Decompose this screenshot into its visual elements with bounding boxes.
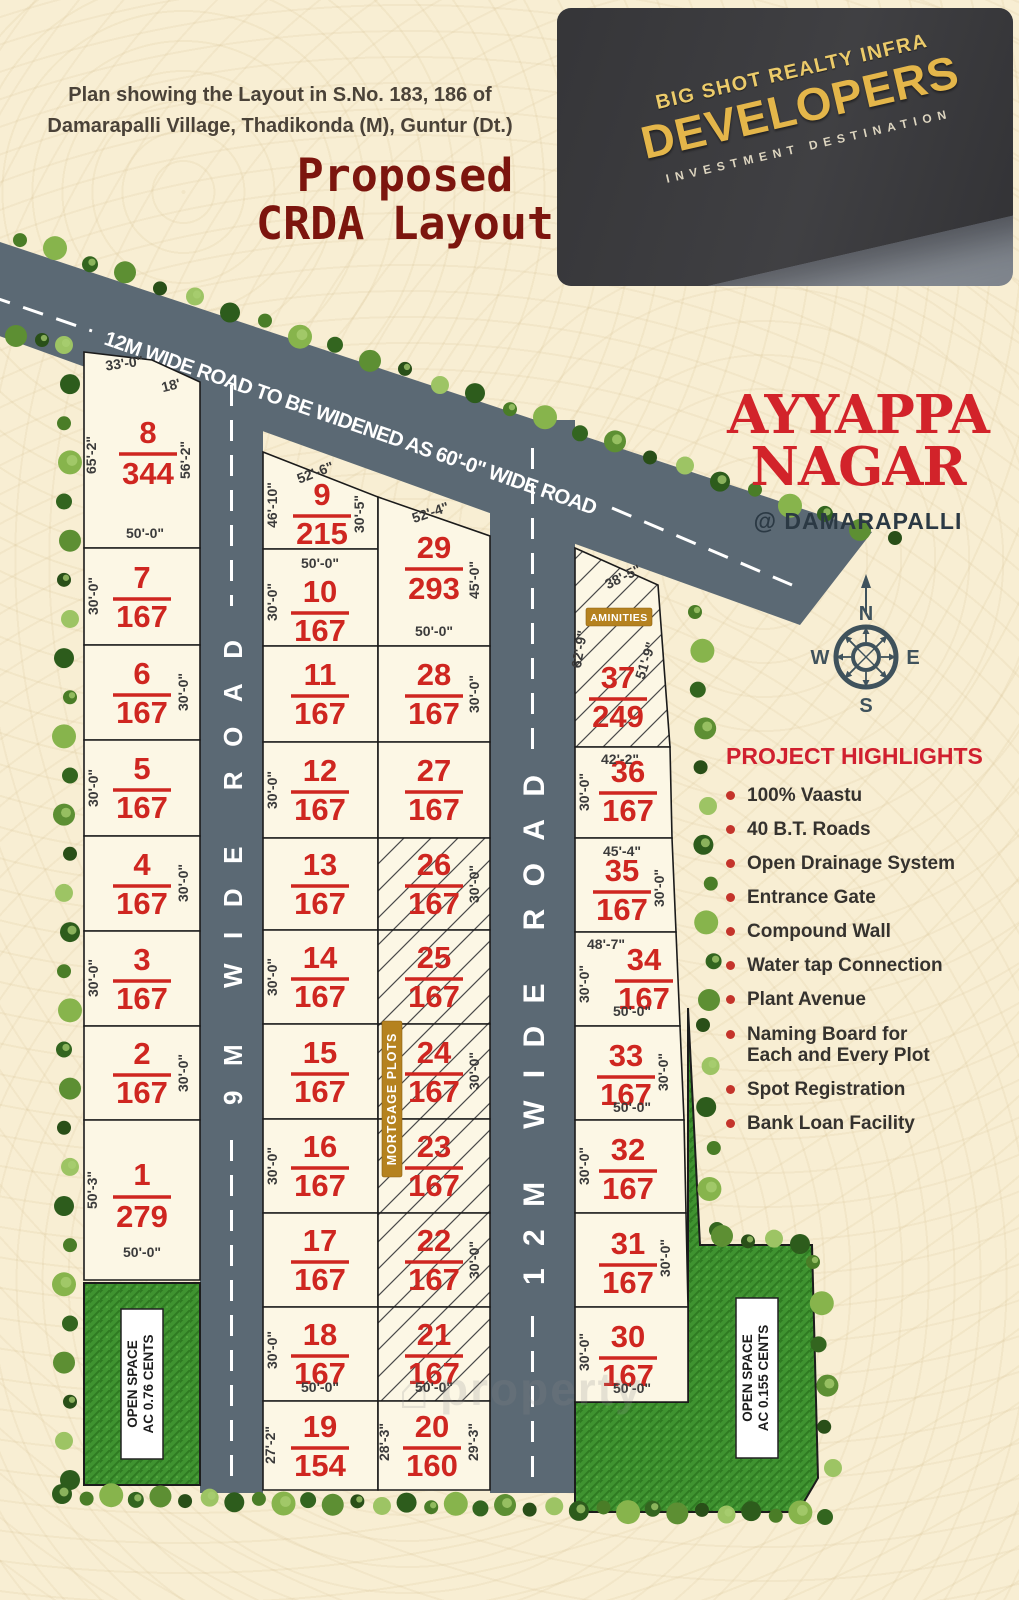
tree-highlight xyxy=(430,1502,436,1508)
tree-icon xyxy=(690,682,706,698)
tree-highlight xyxy=(712,956,719,963)
tree-icon xyxy=(59,1078,81,1100)
tree-highlight xyxy=(69,692,75,698)
plot-number: 34 xyxy=(627,942,662,977)
tree-icon xyxy=(61,610,79,628)
svg-text:property: property xyxy=(440,1363,643,1415)
tree-icon xyxy=(13,233,27,247)
highlight-text: Bank Loan Facility xyxy=(747,1113,915,1134)
plot-dimension: 50'-3" xyxy=(84,1171,100,1209)
bullet-icon xyxy=(726,791,735,800)
plot-area: 167 xyxy=(408,1168,460,1203)
plot-number: 33 xyxy=(609,1038,643,1073)
highlight-text: Entrance Gate xyxy=(747,887,876,908)
plot-area: 167 xyxy=(408,792,460,827)
tree-icon xyxy=(690,639,714,663)
plot-11[interactable]: 11167 xyxy=(263,646,378,742)
plot-number: 31 xyxy=(611,1226,645,1261)
page-title: Proposed CRDA Layout xyxy=(205,152,605,247)
plot-dimension: 46'-10" xyxy=(264,482,280,528)
tree-icon xyxy=(59,530,81,552)
plan-description-line2: Damarapalli Village, Thadikonda (M), Gun… xyxy=(30,111,530,142)
plot-16[interactable]: 1616730'-0" xyxy=(263,1119,378,1213)
tree-highlight xyxy=(576,1504,585,1513)
north-arrow-icon xyxy=(861,574,871,588)
tree-highlight xyxy=(61,808,71,818)
svg-text:AC 0.155 CENTS: AC 0.155 CENTS xyxy=(756,1325,771,1432)
plot-dimension: 30'-0" xyxy=(651,869,667,907)
tree-icon xyxy=(676,457,694,475)
highlight-item: 40 B.T. Roads xyxy=(726,819,1018,840)
plot-15[interactable]: 15167 xyxy=(263,1024,378,1119)
bullet-icon xyxy=(726,859,735,868)
tree-icon xyxy=(465,383,485,403)
plot-17[interactable]: 17167 xyxy=(263,1213,378,1307)
mortgage-label: MORTGAGE PLOTS xyxy=(385,1033,399,1166)
plot-19[interactable]: 1915427'-2" xyxy=(262,1401,378,1490)
plot-number: 3 xyxy=(133,942,150,977)
highlight-item: Entrance Gate xyxy=(726,887,1018,908)
plot-27[interactable]: 27167 xyxy=(378,742,490,838)
svg-text:OPEN SPACE: OPEN SPACE xyxy=(125,1340,140,1428)
tree-highlight xyxy=(61,1277,72,1288)
plot-2[interactable]: 216730'-0" xyxy=(84,1026,200,1120)
tree-highlight xyxy=(356,1496,362,1502)
plot-dimension: 27'-2" xyxy=(262,1426,278,1464)
plot-7[interactable]: 716730'-0" xyxy=(84,548,200,645)
tree-icon xyxy=(444,1492,468,1516)
plot-area: 167 xyxy=(408,886,460,921)
plot-dimension: 30'-0" xyxy=(264,771,280,809)
tree-icon xyxy=(114,261,136,283)
compass-s-label: S xyxy=(859,695,872,717)
page-title-line2: CRDA Layout xyxy=(205,200,605,248)
plot-3[interactable]: 316730'-0" xyxy=(84,931,200,1026)
tree-icon xyxy=(55,884,73,902)
compass-w-label: W xyxy=(811,647,830,669)
plot-9[interactable]: 921552'-6"46'-10"30'-5" xyxy=(263,452,378,551)
tree-icon xyxy=(616,1500,640,1524)
tree-icon xyxy=(711,1225,733,1247)
compass-e-label: E xyxy=(906,647,919,669)
plot-1[interactable]: 127950'-3"50'-0" xyxy=(84,1120,200,1280)
tree-icon xyxy=(695,1503,709,1517)
bullet-icon xyxy=(726,825,735,834)
plot-area: 167 xyxy=(408,696,460,731)
highlight-text: Plant Avenue xyxy=(747,989,866,1010)
tree-highlight xyxy=(62,1044,69,1051)
plot-area: 293 xyxy=(408,571,460,606)
plot-number: 2 xyxy=(133,1036,150,1071)
plot-dimension: 45'-0" xyxy=(466,561,482,599)
plot-number: 16 xyxy=(303,1129,337,1164)
plot-area: 167 xyxy=(294,792,346,827)
tree-highlight xyxy=(701,838,710,847)
plot-32[interactable]: 3216730'-0" xyxy=(575,1120,686,1213)
plot-dimension: 30'-0" xyxy=(466,675,482,713)
plot-number: 7 xyxy=(133,560,150,595)
highlight-item: Bank Loan Facility xyxy=(726,1113,1018,1134)
tree-icon xyxy=(694,910,718,934)
highlight-item: Naming Board for Each and Every Plot xyxy=(726,1024,1018,1066)
bullet-icon xyxy=(726,893,735,902)
tree-icon xyxy=(54,648,74,668)
tree-highlight xyxy=(67,455,78,466)
tree-icon xyxy=(817,1420,831,1434)
tree-icon xyxy=(58,998,82,1022)
plot-number: 18 xyxy=(303,1317,337,1352)
plot-dimension: 30'-0" xyxy=(264,958,280,996)
tree-highlight xyxy=(502,1498,512,1508)
plot-14[interactable]: 1416730'-0" xyxy=(263,930,378,1024)
tree-icon xyxy=(62,1315,78,1331)
tree-icon xyxy=(769,1509,783,1523)
compass-n-label: N xyxy=(859,603,873,625)
highlight-item: 100% Vaastu xyxy=(726,785,1018,806)
plot-area: 167 xyxy=(116,790,168,825)
tree-highlight xyxy=(62,339,70,347)
plot-dimension: 45'-4" xyxy=(603,843,641,859)
plot-number: 6 xyxy=(133,656,150,691)
tree-highlight xyxy=(60,1488,69,1497)
plot-dimension: 50'-0" xyxy=(126,525,164,541)
plot-area: 344 xyxy=(122,456,174,491)
plot-area: 167 xyxy=(116,599,168,634)
plot-dimension: 50'-0" xyxy=(415,623,453,639)
plot-area: 167 xyxy=(294,1262,346,1297)
plot-number: 27 xyxy=(417,753,451,788)
tree-highlight xyxy=(297,329,308,340)
tree-icon xyxy=(57,964,71,978)
plot-18[interactable]: 1816730'-0"50'-0" xyxy=(263,1307,378,1401)
tree-icon xyxy=(258,314,272,328)
plot-dimension: 30'-0" xyxy=(175,1054,191,1092)
plot-dimension: 30'-0" xyxy=(85,769,101,807)
plot-25[interactable]: 25167 xyxy=(378,930,490,1024)
plot-number: 24 xyxy=(417,1035,452,1070)
highlight-item: Plant Avenue xyxy=(726,989,1018,1010)
plot-dimension: 42'-2" xyxy=(601,751,639,767)
plot-number: 13 xyxy=(303,847,337,882)
plot-number: 15 xyxy=(303,1035,337,1070)
tree-highlight xyxy=(69,1397,75,1403)
plot-dimension: 30'-0" xyxy=(576,1147,592,1185)
plot-28[interactable]: 2816730'-0" xyxy=(378,646,490,742)
tree-highlight xyxy=(694,607,700,613)
plot-number: 22 xyxy=(417,1223,451,1258)
highlights-list: 100% Vaastu40 B.T. RoadsOpen Drainage Sy… xyxy=(726,785,1018,1134)
plot-31[interactable]: 3116730'-0" xyxy=(575,1213,688,1307)
bullet-icon xyxy=(726,1119,735,1128)
tree-icon xyxy=(431,376,449,394)
plot-area: 167 xyxy=(408,1262,460,1297)
amenities-label: AMINITIES xyxy=(590,612,648,624)
plot-dimension: 30'-0" xyxy=(264,1147,280,1185)
plot-26[interactable]: 2616730'-0" xyxy=(378,838,490,930)
bullet-icon xyxy=(726,1030,735,1039)
tree-icon xyxy=(220,303,240,323)
plot-33[interactable]: 3316730'-0"50'-0" xyxy=(575,1026,684,1120)
plot-35[interactable]: 3516745'-4"30'-0" xyxy=(575,838,676,932)
plot-number: 26 xyxy=(417,847,451,882)
plot-area: 167 xyxy=(408,1074,460,1109)
plot-dimension: 29'-3" xyxy=(465,1423,481,1461)
plot-dimension: 30'-0" xyxy=(264,1331,280,1369)
plot-area: 167 xyxy=(116,886,168,921)
plot-dimension: 30'-5" xyxy=(351,495,367,533)
plot-number: 29 xyxy=(417,530,451,565)
tree-icon xyxy=(178,1494,192,1508)
plot-dimension: 50'-0" xyxy=(301,1379,339,1395)
project-location: @ DAMARAPALLI xyxy=(708,508,1008,535)
tree-icon xyxy=(373,1497,391,1515)
highlight-item: Compound Wall xyxy=(726,921,1018,942)
tree-icon xyxy=(694,760,708,774)
highlight-text: Naming Board for Each and Every Plot xyxy=(747,1024,930,1066)
plot-number: 21 xyxy=(417,1317,451,1352)
open-space-left-label: OPEN SPACEAC 0.76 CENTS xyxy=(121,1309,163,1459)
plot-dimension: 50'-0" xyxy=(123,1244,161,1260)
plot-number: 14 xyxy=(303,940,338,975)
tree-icon xyxy=(149,1485,171,1507)
plot-area: 167 xyxy=(294,886,346,921)
highlight-text: Spot Registration xyxy=(747,1079,905,1100)
bullet-icon xyxy=(726,961,735,970)
tree-icon xyxy=(596,1500,610,1514)
tree-highlight xyxy=(193,290,201,298)
plot-number: 12 xyxy=(303,753,337,788)
tree-icon xyxy=(523,1503,537,1517)
plot-10[interactable]: 1016750'-0"30'-0" xyxy=(263,549,378,648)
tree-icon xyxy=(696,1018,710,1032)
plot-dimension: 30'-0" xyxy=(466,1052,482,1090)
tree-icon xyxy=(810,1291,834,1315)
plot-area: 167 xyxy=(294,613,346,648)
plot-area: 167 xyxy=(602,793,654,828)
plot-area: 279 xyxy=(116,1199,168,1234)
tree-icon xyxy=(327,337,343,353)
tree-highlight xyxy=(41,335,47,341)
project-name-block: AYYAPPA NAGAR @ DAMARAPALLI xyxy=(708,390,1008,535)
tree-icon xyxy=(698,989,720,1011)
plot-dimension: 48'-7" xyxy=(587,936,625,952)
plot-number: 28 xyxy=(417,657,451,692)
plot-area: 167 xyxy=(294,979,346,1014)
tree-icon xyxy=(43,236,67,260)
tree-highlight xyxy=(509,404,515,410)
tree-highlight xyxy=(88,259,95,266)
plot-34[interactable]: 3416748'-7"30'-0"50'-0" xyxy=(575,932,680,1026)
highlight-item: Open Drainage System xyxy=(726,853,1018,874)
tree-icon xyxy=(397,1493,417,1513)
plot-number: 19 xyxy=(303,1409,337,1444)
plot-area: 167 xyxy=(602,1265,654,1300)
tree-icon xyxy=(790,1234,810,1254)
page-title-line1: Proposed xyxy=(205,152,605,200)
tree-highlight xyxy=(68,926,77,935)
tree-highlight xyxy=(747,1236,753,1242)
plot-12[interactable]: 1216730'-0" xyxy=(263,742,378,838)
plot-29[interactable]: 2929352'-4"45'-0"50'-0" xyxy=(378,497,490,646)
tree-highlight xyxy=(68,1161,76,1169)
plot-dimension: 30'-0" xyxy=(657,1239,673,1277)
bullet-icon xyxy=(726,1085,735,1094)
tree-highlight xyxy=(208,1492,216,1500)
plot-4[interactable]: 416730'-0" xyxy=(84,836,200,931)
tree-icon xyxy=(252,1492,266,1506)
plot-number: 10 xyxy=(303,574,337,609)
plan-description-line1: Plan showing the Layout in S.No. 183, 18… xyxy=(30,80,530,111)
tree-icon xyxy=(80,1492,94,1506)
plot-dimension: 30'-0" xyxy=(466,1241,482,1279)
project-highlights: PROJECT HIGHLIGHTS 100% Vaastu40 B.T. Ro… xyxy=(726,743,1018,1134)
highlight-item: Water tap Connection xyxy=(726,955,1018,976)
highlight-text: Water tap Connection xyxy=(747,955,943,976)
tree-highlight xyxy=(709,1060,717,1068)
plot-number: 5 xyxy=(133,751,150,786)
plot-dimension: 56'-2" xyxy=(177,441,193,479)
plot-number: 11 xyxy=(304,657,337,692)
plot-dimension: 30'-0" xyxy=(175,673,191,711)
tree-icon xyxy=(99,1483,123,1507)
highlight-item: Spot Registration xyxy=(726,1079,1018,1100)
tree-highlight xyxy=(651,1503,658,1510)
tree-icon xyxy=(322,1494,344,1516)
tree-icon xyxy=(5,325,27,347)
tree-icon xyxy=(52,724,76,748)
highlights-title: PROJECT HIGHLIGHTS xyxy=(726,743,1018,770)
bullet-icon xyxy=(726,927,735,936)
plot-number: 37 xyxy=(601,660,635,695)
plot-37[interactable]: 3724938'-5"62'-9"51'-9" xyxy=(568,548,670,747)
plan-description: Plan showing the Layout in S.No. 183, 18… xyxy=(30,80,530,142)
svg-text:OPEN SPACE: OPEN SPACE xyxy=(740,1334,755,1422)
tree-icon xyxy=(63,1238,77,1252)
highlight-text: Open Drainage System xyxy=(747,853,955,874)
plot-area: 167 xyxy=(294,1074,346,1109)
plot-dimension: 30'-0" xyxy=(85,959,101,997)
tree-highlight xyxy=(706,1182,717,1193)
tree-icon xyxy=(696,1097,716,1117)
plot-area: 167 xyxy=(116,1075,168,1110)
plot-area: 167 xyxy=(294,696,346,731)
plot-8[interactable]: 834433'-0"18'65'-2"56'-2"50'-0" xyxy=(83,352,200,548)
project-name-line1: AYYAPPA xyxy=(708,390,1008,442)
tree-icon xyxy=(666,1502,688,1524)
plot-6[interactable]: 616730'-0" xyxy=(84,645,200,740)
tree-icon xyxy=(824,1459,842,1477)
tree-icon xyxy=(62,768,78,784)
tree-highlight xyxy=(824,1379,834,1389)
plot-dimension: 30'-0" xyxy=(85,577,101,615)
tree-icon xyxy=(472,1500,488,1516)
tree-highlight xyxy=(702,721,712,731)
plot-area: 160 xyxy=(406,1448,458,1483)
tree-icon xyxy=(153,281,167,295)
plot-dimension: 50'-0" xyxy=(613,1003,651,1019)
plot-area: 167 xyxy=(294,1168,346,1203)
tree-icon xyxy=(359,350,381,372)
plot-area: 167 xyxy=(116,695,168,730)
plot-dimension: 30'-0" xyxy=(576,773,592,811)
plot-dimension: 28'-3" xyxy=(376,1423,392,1461)
plot-area: 167 xyxy=(408,979,460,1014)
plot-area: 154 xyxy=(294,1448,346,1483)
plot-dimension: 50'-0" xyxy=(613,1099,651,1115)
tree-icon xyxy=(811,1336,827,1352)
plot-dimension: 30'-0" xyxy=(655,1053,671,1091)
tree-icon xyxy=(643,450,657,464)
plot-number: 8 xyxy=(139,415,156,450)
tree-icon xyxy=(707,1141,721,1155)
tree-icon xyxy=(533,405,557,429)
tree-highlight xyxy=(63,575,69,581)
plot-number: 1 xyxy=(133,1157,150,1192)
tree-highlight xyxy=(404,364,410,370)
tree-icon xyxy=(704,877,718,891)
plot-number: 9 xyxy=(313,477,330,512)
tree-icon xyxy=(699,797,717,815)
developer-logo: BIG SHOT REALTY INFRA DEVELOPERS INVESTM… xyxy=(557,8,1013,286)
tree-icon xyxy=(545,1497,563,1515)
tree-icon xyxy=(54,1196,74,1216)
tree-icon xyxy=(741,1501,761,1521)
tree-icon xyxy=(56,494,72,510)
tree-highlight xyxy=(612,434,622,444)
bullet-icon xyxy=(726,995,735,1004)
plot-area: 167 xyxy=(596,892,648,927)
plot-13[interactable]: 13167 xyxy=(263,838,378,930)
plot-number: 25 xyxy=(417,940,451,975)
plot-area: 215 xyxy=(296,516,348,551)
compass-rose: NWES xyxy=(811,574,920,717)
tree-highlight xyxy=(797,1505,808,1516)
open-space-right-label: OPEN SPACEAC 0.155 CENTS xyxy=(736,1298,778,1458)
plot-area: 167 xyxy=(116,981,168,1016)
tree-icon xyxy=(55,1432,73,1450)
tree-icon xyxy=(572,425,588,441)
plot-area: 167 xyxy=(602,1171,654,1206)
svg-text:AC 0.76 CENTS: AC 0.76 CENTS xyxy=(141,1334,156,1433)
plot-number: 4 xyxy=(133,847,151,882)
plot-22[interactable]: 2216730'-0" xyxy=(378,1213,490,1307)
plot-dimension: 30'-0" xyxy=(466,865,482,903)
tree-highlight xyxy=(812,1257,818,1263)
tree-icon xyxy=(53,1352,75,1374)
highlight-text: 40 B.T. Roads xyxy=(747,819,871,840)
plot-36[interactable]: 3616742'-2"30'-0" xyxy=(575,747,672,838)
tree-icon xyxy=(57,416,71,430)
svg-text:⌂: ⌂ xyxy=(398,1362,429,1420)
tree-icon xyxy=(817,1509,833,1525)
tree-icon xyxy=(57,1121,71,1135)
tree-icon xyxy=(224,1492,244,1512)
plot-dimension: 30'-0" xyxy=(264,583,280,621)
tree-highlight xyxy=(724,1508,732,1516)
plot-dimension: 30'-0" xyxy=(175,864,191,902)
plot-dimension: 65'-2" xyxy=(83,436,99,474)
tree-icon xyxy=(60,374,80,394)
plot-number: 23 xyxy=(417,1129,451,1164)
tree-highlight xyxy=(134,1494,141,1501)
tree-highlight xyxy=(280,1496,291,1507)
plot-dimension: 30'-0" xyxy=(576,965,592,1003)
plot-number: 32 xyxy=(611,1132,645,1167)
plot-5[interactable]: 516730'-0" xyxy=(84,740,200,836)
plot-number: 30 xyxy=(611,1319,645,1354)
tree-icon xyxy=(765,1230,783,1248)
tree-icon xyxy=(300,1492,316,1508)
